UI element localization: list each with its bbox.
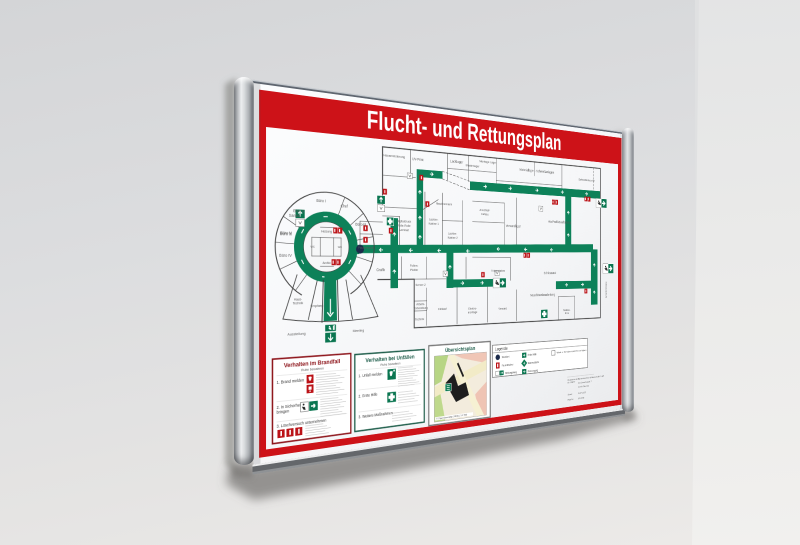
svg-text:Büro: Büro (565, 312, 569, 315)
svg-text:Schlosserei: Schlosserei (544, 271, 556, 275)
svg-text:Anlieferstraße: Anlieferstraße (605, 281, 607, 298)
svg-text:Server 2: Server 2 (416, 283, 426, 287)
svg-text:Büro V: Büro V (280, 231, 292, 236)
svg-text:Kabine: Kabine (481, 212, 489, 216)
svg-text:montage: montage (468, 310, 478, 314)
svg-text:Archiv: Archiv (323, 261, 331, 265)
svg-text:Heizung: Heizung (321, 230, 332, 234)
svg-text:Kabine 2: Kabine 2 (448, 235, 458, 239)
svg-text:Versandlager: Versandlager (506, 224, 521, 228)
svg-text:Büro IV: Büro IV (279, 253, 292, 258)
svg-text:Kabine 1: Kabine 1 (429, 221, 440, 225)
svg-text:Technik: Technik (415, 317, 424, 321)
svg-text:Sanitär: Sanitär (289, 213, 301, 218)
svg-text:Empfang: Empfang (311, 303, 324, 308)
svg-text:Einkauf: Einkauf (438, 307, 447, 311)
svg-text:vorbereitung: vorbereitung (414, 306, 428, 310)
svg-text:Pausenraum: Pausenraum (358, 246, 374, 250)
svg-text:Technik: Technik (293, 301, 303, 305)
svg-text:Laminat: Laminat (399, 228, 409, 232)
svg-text:WC: WC (311, 245, 316, 249)
svg-text:Chef: Chef (341, 204, 349, 209)
svg-text:WC: WC (338, 245, 343, 249)
svg-text:Stand:: Stand: (568, 393, 573, 396)
svg-text:Grafik: Grafik (376, 268, 385, 272)
svg-text:Maschinenbearbeitung: Maschinenbearbeitung (530, 293, 555, 297)
svg-text:Versand: Versand (498, 306, 506, 310)
svg-text:Büro I: Büro I (316, 198, 326, 203)
svg-text:Büro III: Büro III (355, 222, 366, 227)
svg-text:Meeting: Meeting (353, 328, 365, 333)
svg-text:Trägerplatten: Trägerplatten (491, 269, 505, 273)
svg-text:Plotter: Plotter (410, 268, 418, 272)
